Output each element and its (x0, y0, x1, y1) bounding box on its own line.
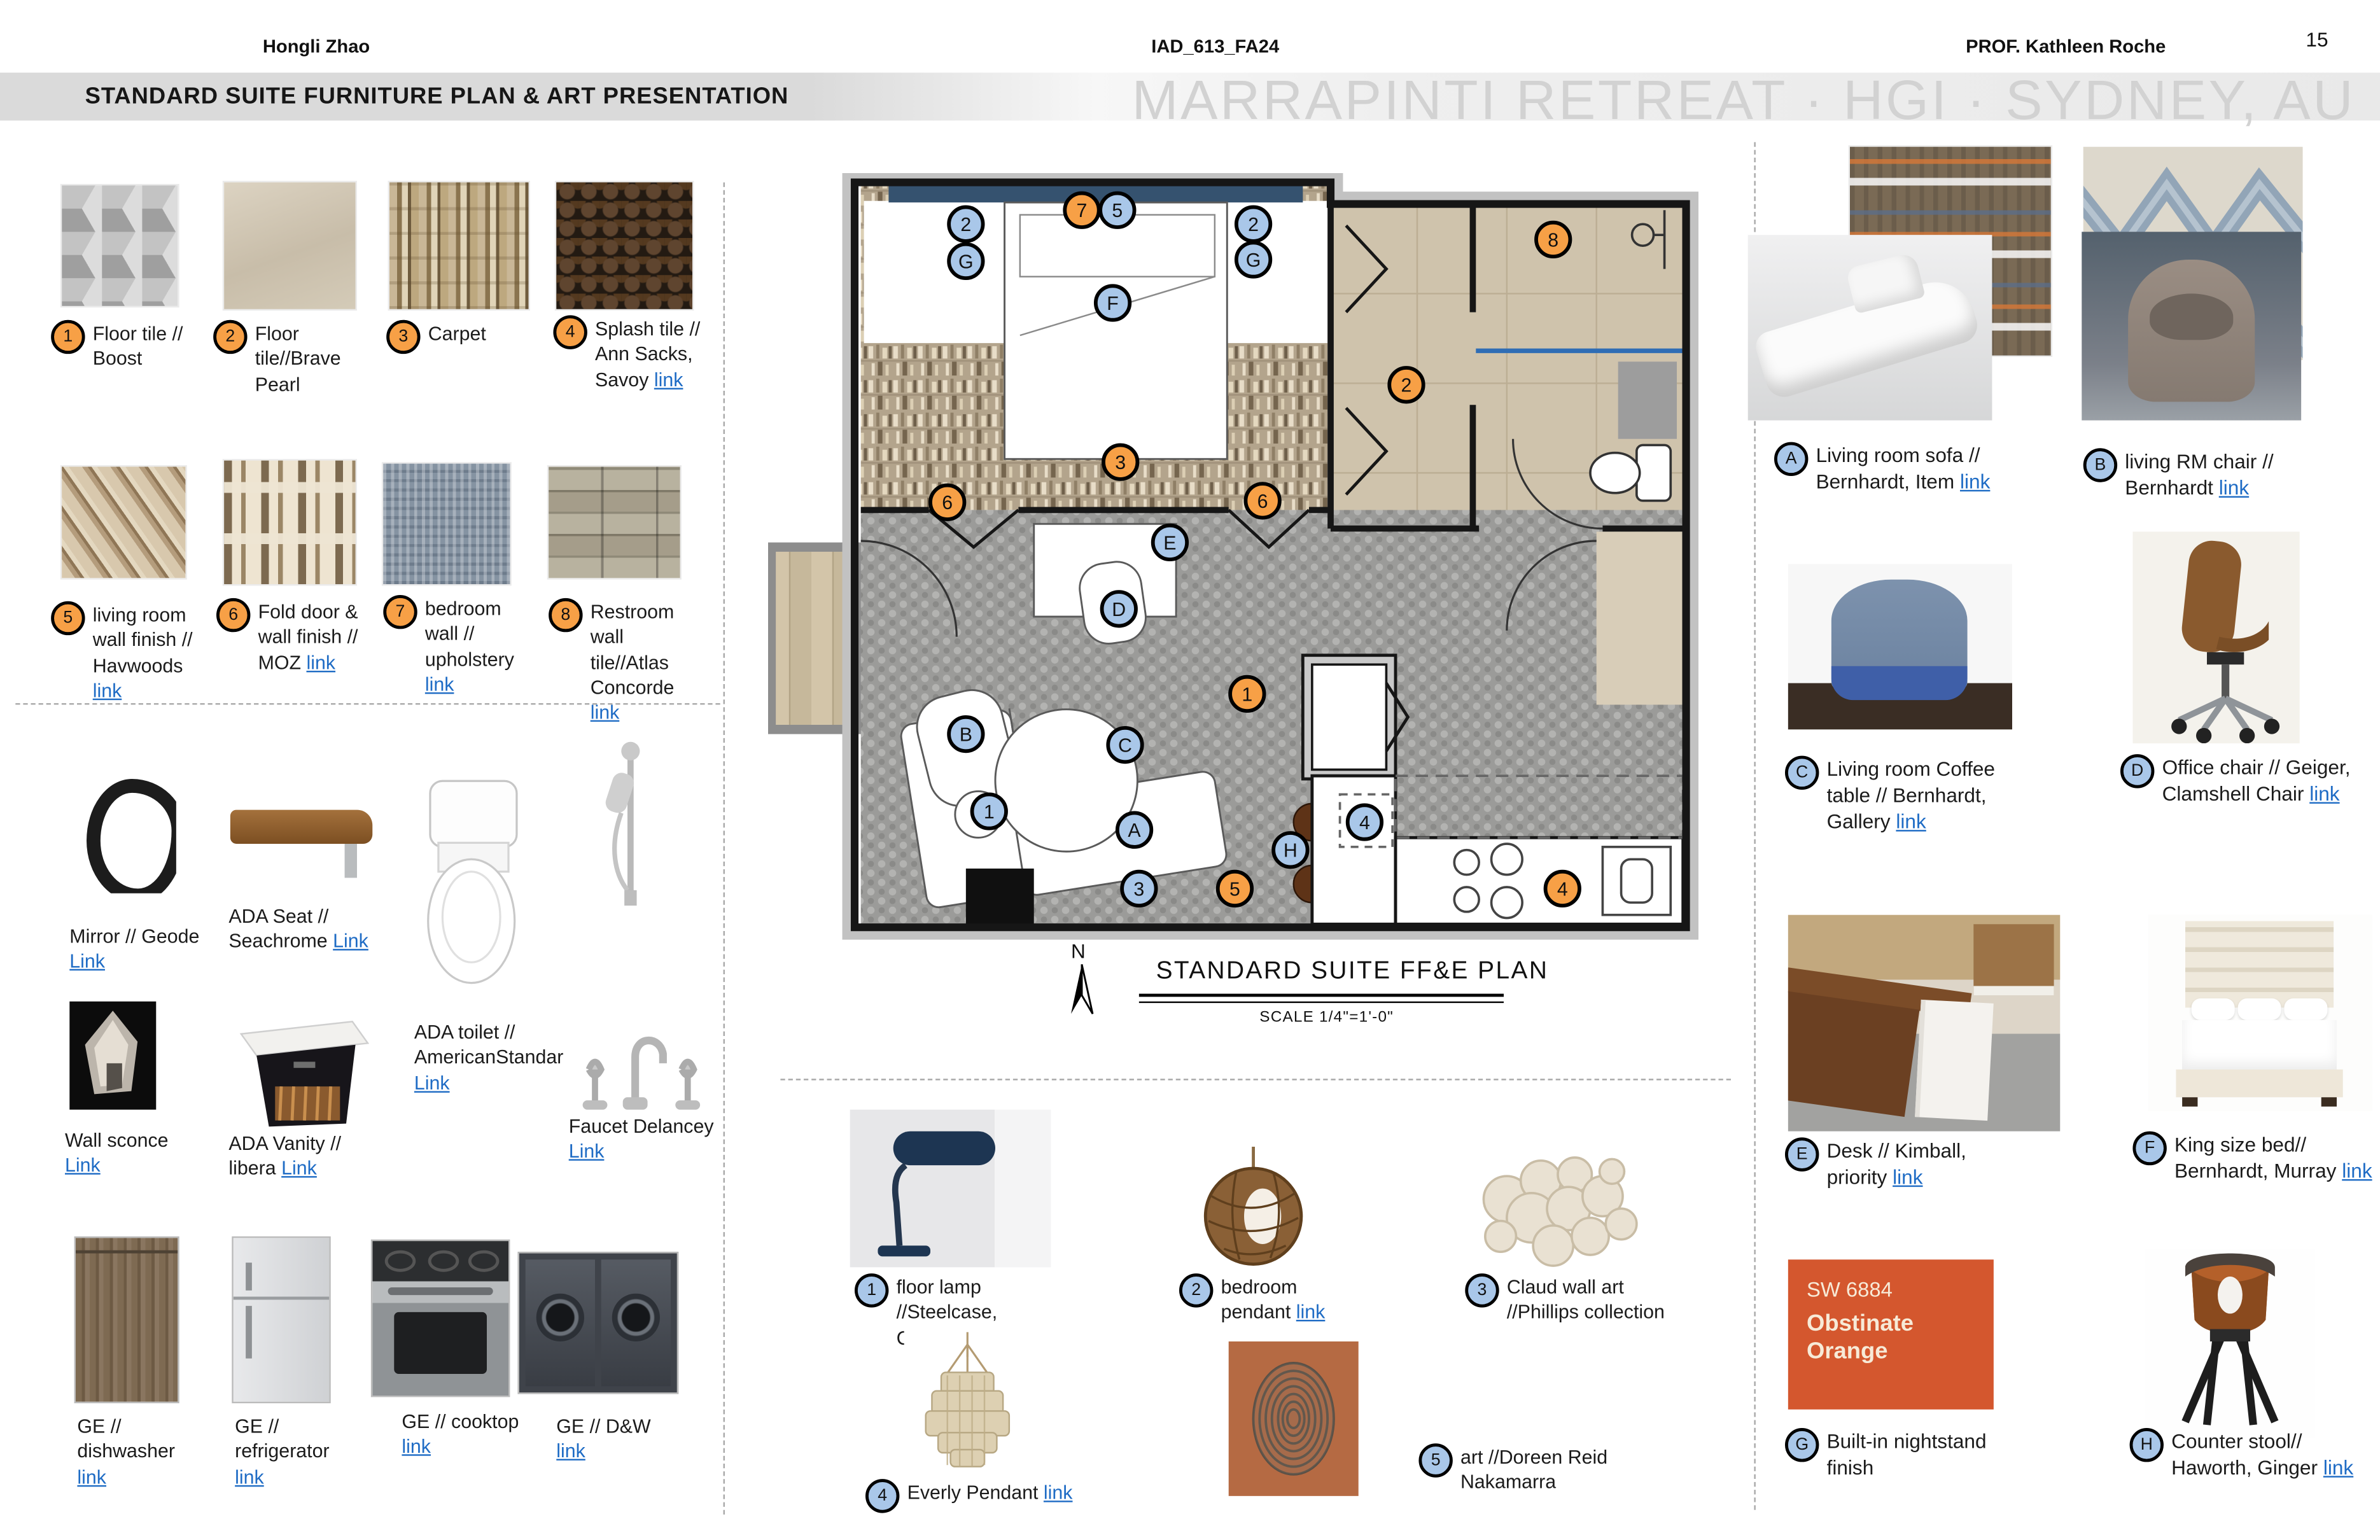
material-label-8: Restroom wall tile//Atlas Concorde (591, 601, 675, 698)
bed-foot-left (2182, 1097, 2197, 1107)
fixture-caption-faucet: Faucet Delancey Link (569, 1114, 716, 1165)
plan-title-rule (1139, 994, 1504, 1004)
plan-marker-label: G (1246, 250, 1261, 271)
furn-badge-D: D (2120, 754, 2154, 788)
material-caption-7: 7 bedroom wall // upholstery link (383, 596, 525, 697)
plan-marker-label: 5 (1229, 879, 1240, 900)
light-label-2: bedroom pendant (1221, 1277, 1298, 1323)
dryer-unit (601, 1259, 671, 1386)
appliance-link-cooktop2[interactable]: link (402, 1436, 431, 1458)
plan-marker-label: E (1163, 533, 1176, 554)
light-caption-4: 4 Everly Pendant link (865, 1481, 1113, 1513)
office-chair-shape (2132, 531, 2299, 743)
bedroom-pendant-shape (1190, 1147, 1317, 1270)
claud-wall-art-shape (1460, 1144, 1658, 1280)
fixture-caption-sconce: Wall sconceLink (65, 1128, 201, 1179)
swatch-bedroom-upholstery (383, 464, 510, 584)
furn-badge-E: E (1785, 1137, 1819, 1171)
fixture-link-ada-seat[interactable]: Link (333, 931, 368, 953)
everly-pendant-photo (904, 1329, 1031, 1478)
bed-pillow-3 (2284, 998, 2327, 1020)
chair-seat-shape (2150, 293, 2233, 340)
refrigerator-doorline (234, 1297, 330, 1300)
desk-side-shape (1788, 989, 1920, 1117)
furn-caption-E: E Desk // Kimball, priority link (1785, 1139, 2017, 1191)
burner-3 (468, 1250, 500, 1272)
fixture-link-ada-toilet[interactable]: Link (414, 1072, 450, 1093)
furn-badge-F: F (2132, 1131, 2166, 1165)
floor-lamp-shape (850, 1110, 1051, 1268)
floor-lamp-photo (850, 1110, 1051, 1268)
material-badge-3: 3 (386, 320, 420, 354)
material-caption-5: 5 living room wall finish // Havwoods li… (51, 603, 209, 703)
plan-marker-label: 2 (1248, 214, 1259, 235)
ada-seat-bracket (345, 844, 357, 878)
material-link-7[interactable]: link (425, 673, 454, 695)
north-arrow: N (1056, 940, 1109, 1020)
light-caption-2: 2 bedroom pendant link (1179, 1275, 1334, 1326)
plan-marker-label: 2 (1401, 375, 1412, 396)
furn-caption-A: A Living room sofa // Bernhardt, Item li… (1774, 444, 2013, 496)
material-link-8[interactable]: link (591, 702, 620, 724)
material-caption-2: 2 Floor tile//Brave Pearl (213, 321, 365, 396)
ada-vanity-photo (232, 1012, 374, 1133)
furn-caption-F: F King size bed// Bernhardt, Murray link (2132, 1133, 2372, 1185)
hand-shower-shape (599, 739, 652, 921)
office-chair-photo (2132, 531, 2299, 743)
fixture-label-ada-toilet: ADA toilet // AmericanStandard (414, 1021, 574, 1068)
floor-plan: 2752GGF82366ED1BC1A4H354 (768, 173, 1702, 942)
furn-label-B: living RM chair // Bernhardt (2125, 450, 2273, 499)
kitchen-sink-plan (1602, 847, 1670, 915)
swatch-restroom-wall-tile (549, 466, 680, 578)
fixture-label-ada-seat: ADA Seat // Seachrome (228, 906, 328, 952)
ada-seat-photo (224, 791, 386, 887)
material-badge-8: 8 (549, 598, 582, 632)
plan-marker-label: 8 (1548, 230, 1558, 251)
bed-headboard-shape (2185, 921, 2334, 1007)
fixture-label-faucet: Faucet Delancey (569, 1116, 714, 1137)
media-unit-inner (1312, 664, 1387, 769)
section-title: STANDARD SUITE FURNITURE PLAN & ART PRES… (85, 83, 789, 109)
material-badge-2: 2 (213, 320, 247, 354)
furn-label-H: Counter stool// Haworth, Ginger (2171, 1429, 2318, 1478)
fixture-caption-ada-toilet: ADA toilet // AmericanStandard Link (414, 1020, 561, 1095)
plan-marker-label: G (958, 251, 974, 272)
material-label-5: living room wall finish // Havwoods (93, 605, 193, 676)
material-label-1: Floor tile // Boost (93, 323, 183, 370)
refrigerator-photo (232, 1236, 330, 1403)
guest-chair-photo (2082, 232, 2301, 420)
fixture-link-mirror[interactable]: Link (69, 951, 105, 972)
fixture-caption-vanity: ADA Vanity // libera Link (228, 1131, 380, 1182)
furn-link-B[interactable]: link (2219, 476, 2249, 499)
swatch-carpet (389, 183, 529, 309)
north-label: N (1071, 940, 1086, 963)
bed-foot-right (2321, 1097, 2337, 1107)
material-label-4: Splash tile // Ann Sacks, Savoy (595, 318, 700, 390)
plan-marker-label: 4 (1359, 813, 1370, 834)
dishwasher-seam (76, 1250, 178, 1254)
ottoman-base-band (1831, 666, 1968, 700)
ada-toilet-shape (410, 776, 533, 992)
fixture-caption-mirror: Mirror // Geode Link (69, 924, 211, 974)
mirror-ring-shape (87, 779, 176, 893)
bed-pillow-1 (2192, 998, 2235, 1020)
furn-caption-C: C Living room Coffee table // Bernhardt,… (1785, 757, 2029, 836)
bedroom-pendant-photo (1190, 1147, 1317, 1270)
desk-modesty-panel (1915, 1000, 1994, 1121)
dishwasher-photo (74, 1236, 179, 1403)
material-caption-4: 4 Splash tile // Ann Sacks, Savoy link (553, 317, 715, 392)
appliance-caption-dishwasher: GE // dishwasherlink (77, 1414, 200, 1489)
appliance-label-dishwasher: GE // dishwasher (77, 1416, 175, 1462)
swatch-floor-tile-brave-pearl (224, 183, 355, 309)
material-badge-4: 4 (553, 315, 587, 349)
plan-marker-label: 1 (1242, 684, 1252, 705)
sofa-photo (1748, 235, 1992, 420)
oven-window (394, 1312, 487, 1374)
appliance-label-cooktop: GE // cooktop (402, 1411, 519, 1432)
king-bed-photo (2148, 915, 2372, 1111)
furn-label-F: King size bed// Bernhardt, Murray (2174, 1133, 2336, 1182)
swatch-fold-door-finish (224, 461, 355, 584)
plan-marker-label: A (1128, 820, 1141, 841)
author-name: Hongli Zhao (263, 36, 370, 57)
swatch-floor-tile-boost (62, 185, 178, 305)
wall-sconce-photo (69, 1002, 156, 1110)
material-caption-6: 6 Fold door & wall finish // MOZ link (216, 599, 371, 675)
plan-marker-label: 3 (1115, 452, 1126, 473)
shower-bench (1618, 361, 1677, 438)
light-badge-4: 4 (865, 1479, 899, 1513)
furn-link-E[interactable]: link (1893, 1165, 1922, 1188)
fixture-link-faucet[interactable]: Link (569, 1141, 605, 1163)
wall-art-plan (966, 869, 1034, 924)
plan-marker-label: 6 (942, 493, 953, 514)
plan-marker-label: H (1284, 841, 1298, 862)
furn-caption-G: G Built-in nightstand finish (1785, 1429, 2017, 1481)
dryer-door (612, 1294, 660, 1341)
plan-marker-label: C (1118, 735, 1132, 756)
light-link-4[interactable]: link (1044, 1482, 1073, 1504)
appliance-link-dishwasher[interactable]: link (77, 1466, 106, 1487)
swatch-living-wall-finish (62, 466, 185, 578)
furn-badge-B: B (2083, 448, 2117, 482)
furn-badge-H: H (2130, 1428, 2164, 1462)
furn-link-C[interactable]: link (1896, 809, 1926, 832)
ada-seat-shape (230, 810, 372, 844)
material-badge-5: 5 (51, 601, 85, 635)
paint-name: Obstinate Orange (1807, 1310, 1930, 1366)
counter-stool-photo (2145, 1249, 2315, 1437)
material-label-7: bedroom wall // upholstery (425, 598, 514, 670)
furn-link-A[interactable]: link (1960, 470, 1990, 493)
plan-marker-label: 6 (1257, 491, 1268, 512)
furn-badge-G: G (1785, 1428, 1819, 1462)
divider-horizontal-middle (780, 1079, 1731, 1080)
material-caption-8: 8 Restroom wall tile//Atlas Concorde lin… (549, 599, 703, 725)
page-number: 15 (2306, 28, 2328, 51)
plan-scale-note: SCALE 1/4"=1'-0" (1259, 1009, 1394, 1026)
divider-vertical-left (724, 183, 725, 1515)
refrigerator-handle-bottom (246, 1306, 252, 1359)
material-caption-3: 3 Carpet (386, 321, 533, 354)
counter-stool-shape (2145, 1249, 2315, 1437)
material-link-4[interactable]: link (654, 368, 683, 390)
range-handle (388, 1287, 493, 1295)
burner-2 (428, 1250, 459, 1272)
claud-wall-art-photo (1460, 1144, 1658, 1280)
light-label-5: art //Doreen Reid Nakamarra (1460, 1446, 1607, 1493)
furn-label-G: Built-in nightstand finish (1827, 1429, 1987, 1478)
paint-code: SW 6884 (1807, 1278, 1994, 1301)
hand-shower-photo (599, 739, 652, 921)
light-label-3: Claud wall art //Phillips collection (1507, 1277, 1665, 1323)
appliance-link-refrigerator[interactable]: link (235, 1466, 264, 1487)
furn-caption-B: B living RM chair // Bernhardt link (2083, 450, 2307, 502)
furn-link-D[interactable]: link (2309, 782, 2339, 805)
kitchen-island-plan (1312, 776, 1396, 924)
coffee-table-photo (1788, 564, 2012, 729)
paint-swatch-sw6884: SW 6884 Obstinate Orange (1788, 1259, 1994, 1410)
plan-title: STANDARD SUITE FF&E PLAN (1156, 958, 1549, 986)
faucet-photo (564, 1023, 706, 1116)
project-title: MARRAPINTI RETREAT · HGI · SYDNEY, AU (1132, 68, 2356, 133)
plan-marker-label: D (1112, 599, 1126, 620)
light-badge-3: 3 (1465, 1273, 1499, 1307)
burner-1 (385, 1250, 416, 1272)
light-badge-2: 2 (1179, 1273, 1213, 1307)
bed-pillow-2 (2238, 998, 2281, 1020)
fixture-label-mirror: Mirror // Geode (69, 926, 199, 948)
swatch-splash-tile (556, 183, 692, 309)
furn-caption-H: H Counter stool// Haworth, Ginger link (2130, 1429, 2374, 1481)
light-badge-1: 1 (855, 1273, 888, 1307)
plan-marker-label: 1 (984, 802, 995, 823)
plan-marker-label: F (1107, 293, 1119, 314)
doreen-art-shape (1229, 1341, 1359, 1496)
nightstand-zone-left (864, 201, 1006, 343)
light-badge-5: 5 (1418, 1443, 1452, 1477)
doreen-art-photo (1229, 1341, 1359, 1496)
mirror-photo (74, 773, 176, 893)
everly-pendant-shape (904, 1329, 1031, 1478)
ada-toilet-photo (410, 776, 533, 992)
light-link-2[interactable]: link (1296, 1301, 1326, 1323)
refrigerator-handle-top (246, 1263, 252, 1291)
material-link-6[interactable]: link (307, 652, 336, 673)
material-caption-1: 1 Floor tile // Boost (51, 321, 209, 372)
plan-marker-label: 2 (960, 214, 971, 235)
presentation-board: Hongli Zhao IAD_613_FA24 PROF. Kathleen … (0, 0, 2380, 1539)
light-caption-5: 5 art //Doreen Reid Nakamarra (1418, 1445, 1650, 1495)
furn-link-F[interactable]: link (2342, 1159, 2372, 1182)
range-photo (371, 1240, 510, 1397)
material-label-3: Carpet (428, 323, 486, 345)
light-label-4: Everly Pendant (907, 1482, 1039, 1504)
fixture-link-sconce[interactable]: Link (65, 1155, 101, 1177)
appliance-caption-dw: GE // D&Wlink (556, 1414, 680, 1464)
ada-vanity-shape (232, 1012, 374, 1133)
material-link-5[interactable]: link (93, 680, 122, 701)
plan-marker-label: 5 (1112, 200, 1123, 221)
faucet-shape (564, 1023, 706, 1116)
desk-photo (1788, 915, 2060, 1131)
furn-caption-D: D Office chair // Geiger, Clamshell Chai… (2120, 756, 2370, 808)
washer-door (536, 1294, 584, 1341)
course-code: IAD_613_FA24 (1151, 36, 1279, 57)
appliance-caption-refrigerator: GE // refrigeratorlink (235, 1414, 358, 1489)
washer-dryer-photo (518, 1252, 679, 1394)
plan-marker-label: B (960, 724, 972, 745)
appliance-caption-cooktop: GE // cooktoplink (402, 1410, 525, 1460)
light-caption-3: 3 Claud wall art //Phillips collection (1465, 1275, 1674, 1326)
fixture-caption-ada-seat: ADA Seat // Seachrome Link (228, 904, 395, 955)
plan-marker-label: 3 (1133, 879, 1144, 900)
material-badge-1: 1 (51, 320, 85, 354)
furn-link-H[interactable]: link (2323, 1455, 2353, 1478)
appliance-label-refrigerator: GE // refrigerator (235, 1416, 329, 1462)
furn-label-A: Living room sofa // Bernhardt, Item (1816, 444, 1980, 493)
appliance-link-dw[interactable]: link (556, 1441, 585, 1462)
bed-mattress-shape (2182, 1020, 2337, 1073)
washer-unit (526, 1259, 595, 1386)
wall-sconce-shape (69, 1002, 156, 1110)
appliance-label-dw: GE // D&W (556, 1416, 650, 1438)
bed-base-shape (2176, 1070, 2342, 1098)
plan-marker-label: 4 (1557, 879, 1568, 900)
material-badge-7: 7 (383, 595, 417, 629)
entry-tile-floor (1597, 531, 1686, 704)
fixture-label-sconce: Wall sconce (65, 1130, 169, 1151)
material-label-2: Floor tile//Brave Pearl (255, 323, 341, 395)
plan-marker-label: 7 (1077, 200, 1088, 221)
professor-name: PROF. Kathleen Roche (1966, 36, 2166, 57)
furn-badge-A: A (1774, 442, 1808, 476)
fixture-link-vanity[interactable]: Link (281, 1158, 317, 1180)
cabinet-behind-desk (1973, 924, 2054, 995)
furn-badge-C: C (1785, 756, 1819, 790)
material-badge-6: 6 (216, 598, 250, 632)
